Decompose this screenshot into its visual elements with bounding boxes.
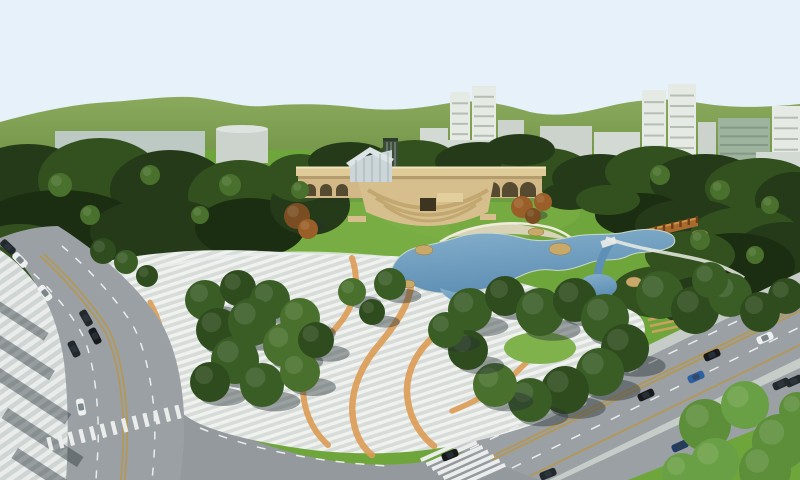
- stage-pavilion: [437, 193, 463, 202]
- tree-highlight: [303, 326, 319, 342]
- tree-highlight: [454, 292, 474, 312]
- tree-highlight: [697, 266, 713, 282]
- building-window-band: [452, 102, 468, 104]
- building-cylinder-top: [216, 125, 268, 133]
- building-window-band: [774, 127, 798, 129]
- boulder: [549, 243, 571, 255]
- building-window-band: [452, 113, 468, 115]
- tree: [191, 206, 209, 224]
- tree-highlight: [217, 341, 239, 363]
- tree: [240, 363, 284, 407]
- building-window-band: [670, 126, 694, 128]
- pergola-post: [671, 222, 673, 229]
- building-window-band: [720, 135, 768, 137]
- tree-highlight: [746, 449, 769, 472]
- building-window-band: [774, 117, 798, 119]
- tree-highlight: [202, 312, 222, 332]
- tree-highlight: [697, 443, 719, 465]
- tree: [650, 165, 670, 185]
- tree: [90, 238, 116, 264]
- tree-highlight: [190, 284, 208, 302]
- tree: [428, 312, 464, 348]
- tree-highlight: [83, 207, 92, 216]
- tree: [48, 173, 72, 197]
- tree-highlight: [143, 167, 152, 176]
- tree: [359, 299, 385, 325]
- tree-highlight: [522, 293, 544, 315]
- building-cylinder: [216, 129, 268, 163]
- tree: [136, 265, 158, 287]
- amphitheater-steps: [480, 214, 496, 220]
- pergola-post: [696, 216, 698, 223]
- tree: [190, 362, 230, 402]
- bridge-arch: [336, 184, 348, 196]
- tree-highlight: [642, 276, 664, 298]
- amphitheater-steps: [348, 216, 366, 222]
- tree-highlight: [285, 356, 303, 374]
- tree-highlight: [301, 221, 310, 230]
- building-window-band: [670, 137, 694, 139]
- bridge-arch: [320, 184, 332, 196]
- building-window-band: [452, 123, 468, 125]
- pergola-post: [663, 224, 665, 231]
- tree: [291, 181, 309, 199]
- tree: [219, 174, 241, 196]
- tree-highlight: [607, 329, 629, 351]
- bridge-deck: [296, 168, 546, 176]
- building-window-band: [474, 115, 494, 117]
- tree-highlight: [285, 302, 303, 320]
- tree-highlight: [514, 198, 524, 208]
- tree: [761, 196, 779, 214]
- tree: [114, 250, 138, 274]
- building-window-band: [774, 149, 798, 151]
- tree-highlight: [246, 367, 266, 387]
- tree-highlight: [748, 248, 756, 256]
- tree-highlight: [362, 302, 374, 314]
- building-window-band: [474, 135, 494, 137]
- tree-highlight: [713, 182, 722, 191]
- tree: [298, 219, 318, 239]
- tree-highlight: [139, 267, 149, 277]
- boulder: [415, 245, 433, 255]
- tree-highlight: [527, 210, 534, 217]
- building-window-band: [474, 96, 494, 98]
- tree-highlight: [51, 175, 62, 186]
- building-window-band: [720, 127, 768, 129]
- bridge-railing: [296, 167, 546, 169]
- building-window-band: [720, 144, 768, 146]
- tree-highlight: [93, 241, 105, 253]
- tree-highlight: [653, 167, 662, 176]
- tree-highlight: [773, 282, 789, 298]
- tree: [338, 278, 366, 306]
- bridge-deck-shadow: [298, 176, 542, 179]
- building-window-band: [670, 105, 694, 107]
- park-render-canvas: [0, 0, 800, 480]
- tree-highlight: [269, 327, 289, 347]
- tree-highlight: [763, 198, 771, 206]
- tree-highlight: [490, 280, 508, 298]
- tree: [140, 165, 160, 185]
- tree-highlight: [582, 353, 604, 375]
- tree-highlight: [745, 296, 763, 314]
- tree: [525, 208, 541, 224]
- tree-highlight: [433, 316, 449, 332]
- boulder: [528, 228, 544, 236]
- tree-highlight: [378, 271, 392, 285]
- building-window-band: [474, 106, 494, 108]
- pergola-post: [688, 218, 690, 225]
- tree-highlight: [193, 208, 201, 216]
- building-window-band: [452, 133, 468, 135]
- tree: [746, 246, 764, 264]
- tree-highlight: [727, 386, 749, 408]
- tree-highlight: [547, 371, 569, 393]
- building-window-band: [474, 125, 494, 127]
- building-window-band: [670, 95, 694, 97]
- tree-highlight: [222, 176, 232, 186]
- tree-highlight: [234, 303, 256, 325]
- tree-highlight: [693, 232, 702, 241]
- forest-blob: [576, 185, 640, 215]
- tree: [298, 322, 334, 358]
- tree: [692, 262, 728, 298]
- building-window-band: [644, 101, 664, 103]
- tree-highlight: [784, 396, 800, 412]
- building-window-band: [670, 116, 694, 118]
- tree: [534, 193, 552, 211]
- pergola-post: [679, 220, 681, 227]
- tree-highlight: [293, 183, 301, 191]
- tree-highlight: [342, 281, 355, 294]
- tree: [690, 230, 710, 250]
- building-window-band: [644, 123, 664, 125]
- park-render-viewport: [0, 0, 800, 480]
- tree-highlight: [195, 366, 213, 384]
- tree-highlight: [587, 299, 609, 321]
- tree-highlight: [677, 291, 699, 313]
- tree: [710, 180, 730, 200]
- building-window-band: [644, 112, 664, 114]
- forest-blob: [485, 134, 555, 166]
- amphitheater-entrance: [420, 198, 436, 211]
- tree-highlight: [559, 282, 579, 302]
- tree-highlight: [117, 252, 128, 263]
- tree-highlight: [667, 457, 685, 475]
- tree-highlight: [536, 195, 544, 203]
- building-window-band: [774, 138, 798, 140]
- tree: [80, 205, 100, 225]
- tree-highlight: [686, 404, 709, 427]
- building-window-band: [644, 135, 664, 137]
- tree-highlight: [759, 420, 784, 445]
- tree: [374, 268, 406, 300]
- tree-highlight: [225, 274, 241, 290]
- tree-highlight: [287, 206, 299, 218]
